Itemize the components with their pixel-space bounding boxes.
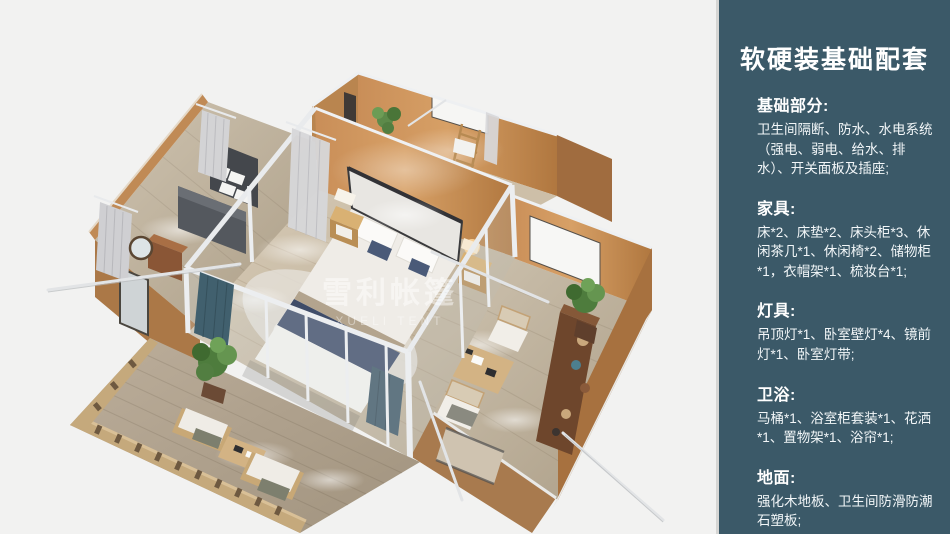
- spec-section-heading: 灯具:: [757, 297, 936, 321]
- watermark: 雪利帐篷 XUELI TENT: [322, 277, 458, 328]
- spec-section-body: 吊顶灯*1、卧室壁灯*4、镜前灯*1、卧室灯带;: [757, 325, 936, 364]
- frame-post-e: [512, 185, 515, 257]
- spec-panel: 软硬装基础配套 基础部分:卫生间隔断、防水、水电系统（强电、弱电、给水、排水）、…: [719, 0, 950, 534]
- bathroom-right-wall: [557, 135, 612, 222]
- spec-section-body: 卫生间隔断、防水、水电系统（强电、弱电、给水、排水）、开关面板及插座;: [757, 120, 936, 179]
- floorplan-render: 雪利帐篷 XUELI TENT: [0, 0, 716, 534]
- spec-section: 卫浴:马桶*1、浴室柜套装*1、花洒*1、置物架*1、浴帘*1;: [757, 381, 936, 448]
- spec-section: 家具:床*2、床垫*2、床头柜*3、休闲茶几*1、休闲椅*2、储物柜*1，衣帽架…: [757, 195, 936, 282]
- panel-title: 软硬装基础配套: [740, 40, 936, 76]
- spec-section: 基础部分:卫生间隔断、防水、水电系统（强电、弱电、给水、排水）、开关面板及插座;: [757, 92, 936, 179]
- spec-section-heading: 地面:: [757, 464, 936, 488]
- watermark-cjk: 雪利帐篷: [322, 277, 458, 310]
- spec-section-body: 强化木地板、卫生间防滑防潮石塑板;: [757, 492, 936, 531]
- spec-section-heading: 卫浴:: [757, 381, 936, 405]
- spec-section: 灯具:吊顶灯*1、卧室壁灯*4、镜前灯*1、卧室灯带;: [757, 297, 936, 364]
- spec-section-heading: 基础部分:: [757, 92, 936, 116]
- frame-post-s: [408, 352, 410, 458]
- shower-curtain: [484, 112, 499, 165]
- spec-section-body: 床*2、床垫*2、床头柜*3、休闲茶几*1、休闲椅*2、储物柜*1，衣帽架*1、…: [757, 223, 936, 282]
- frame-post-w: [186, 268, 188, 333]
- watermark-latin: XUELI TENT: [335, 314, 444, 328]
- gray-curtain-1: [198, 110, 230, 182]
- spec-section-body: 马桶*1、浴室柜套装*1、花洒*1、置物架*1、浴帘*1;: [757, 409, 936, 448]
- spec-sections: 基础部分:卫生间隔断、防水、水电系统（强电、弱电、给水、排水）、开关面板及插座;…: [757, 92, 936, 531]
- floorplan-canvas: 雪利帐篷 XUELI TENT: [0, 0, 716, 534]
- spec-section-heading: 家具:: [757, 195, 936, 219]
- bedroom-gray-curtain: [288, 128, 330, 242]
- spec-section: 地面:强化木地板、卫生间防滑防潮石塑板;: [757, 464, 936, 531]
- round-mirror: [130, 237, 152, 259]
